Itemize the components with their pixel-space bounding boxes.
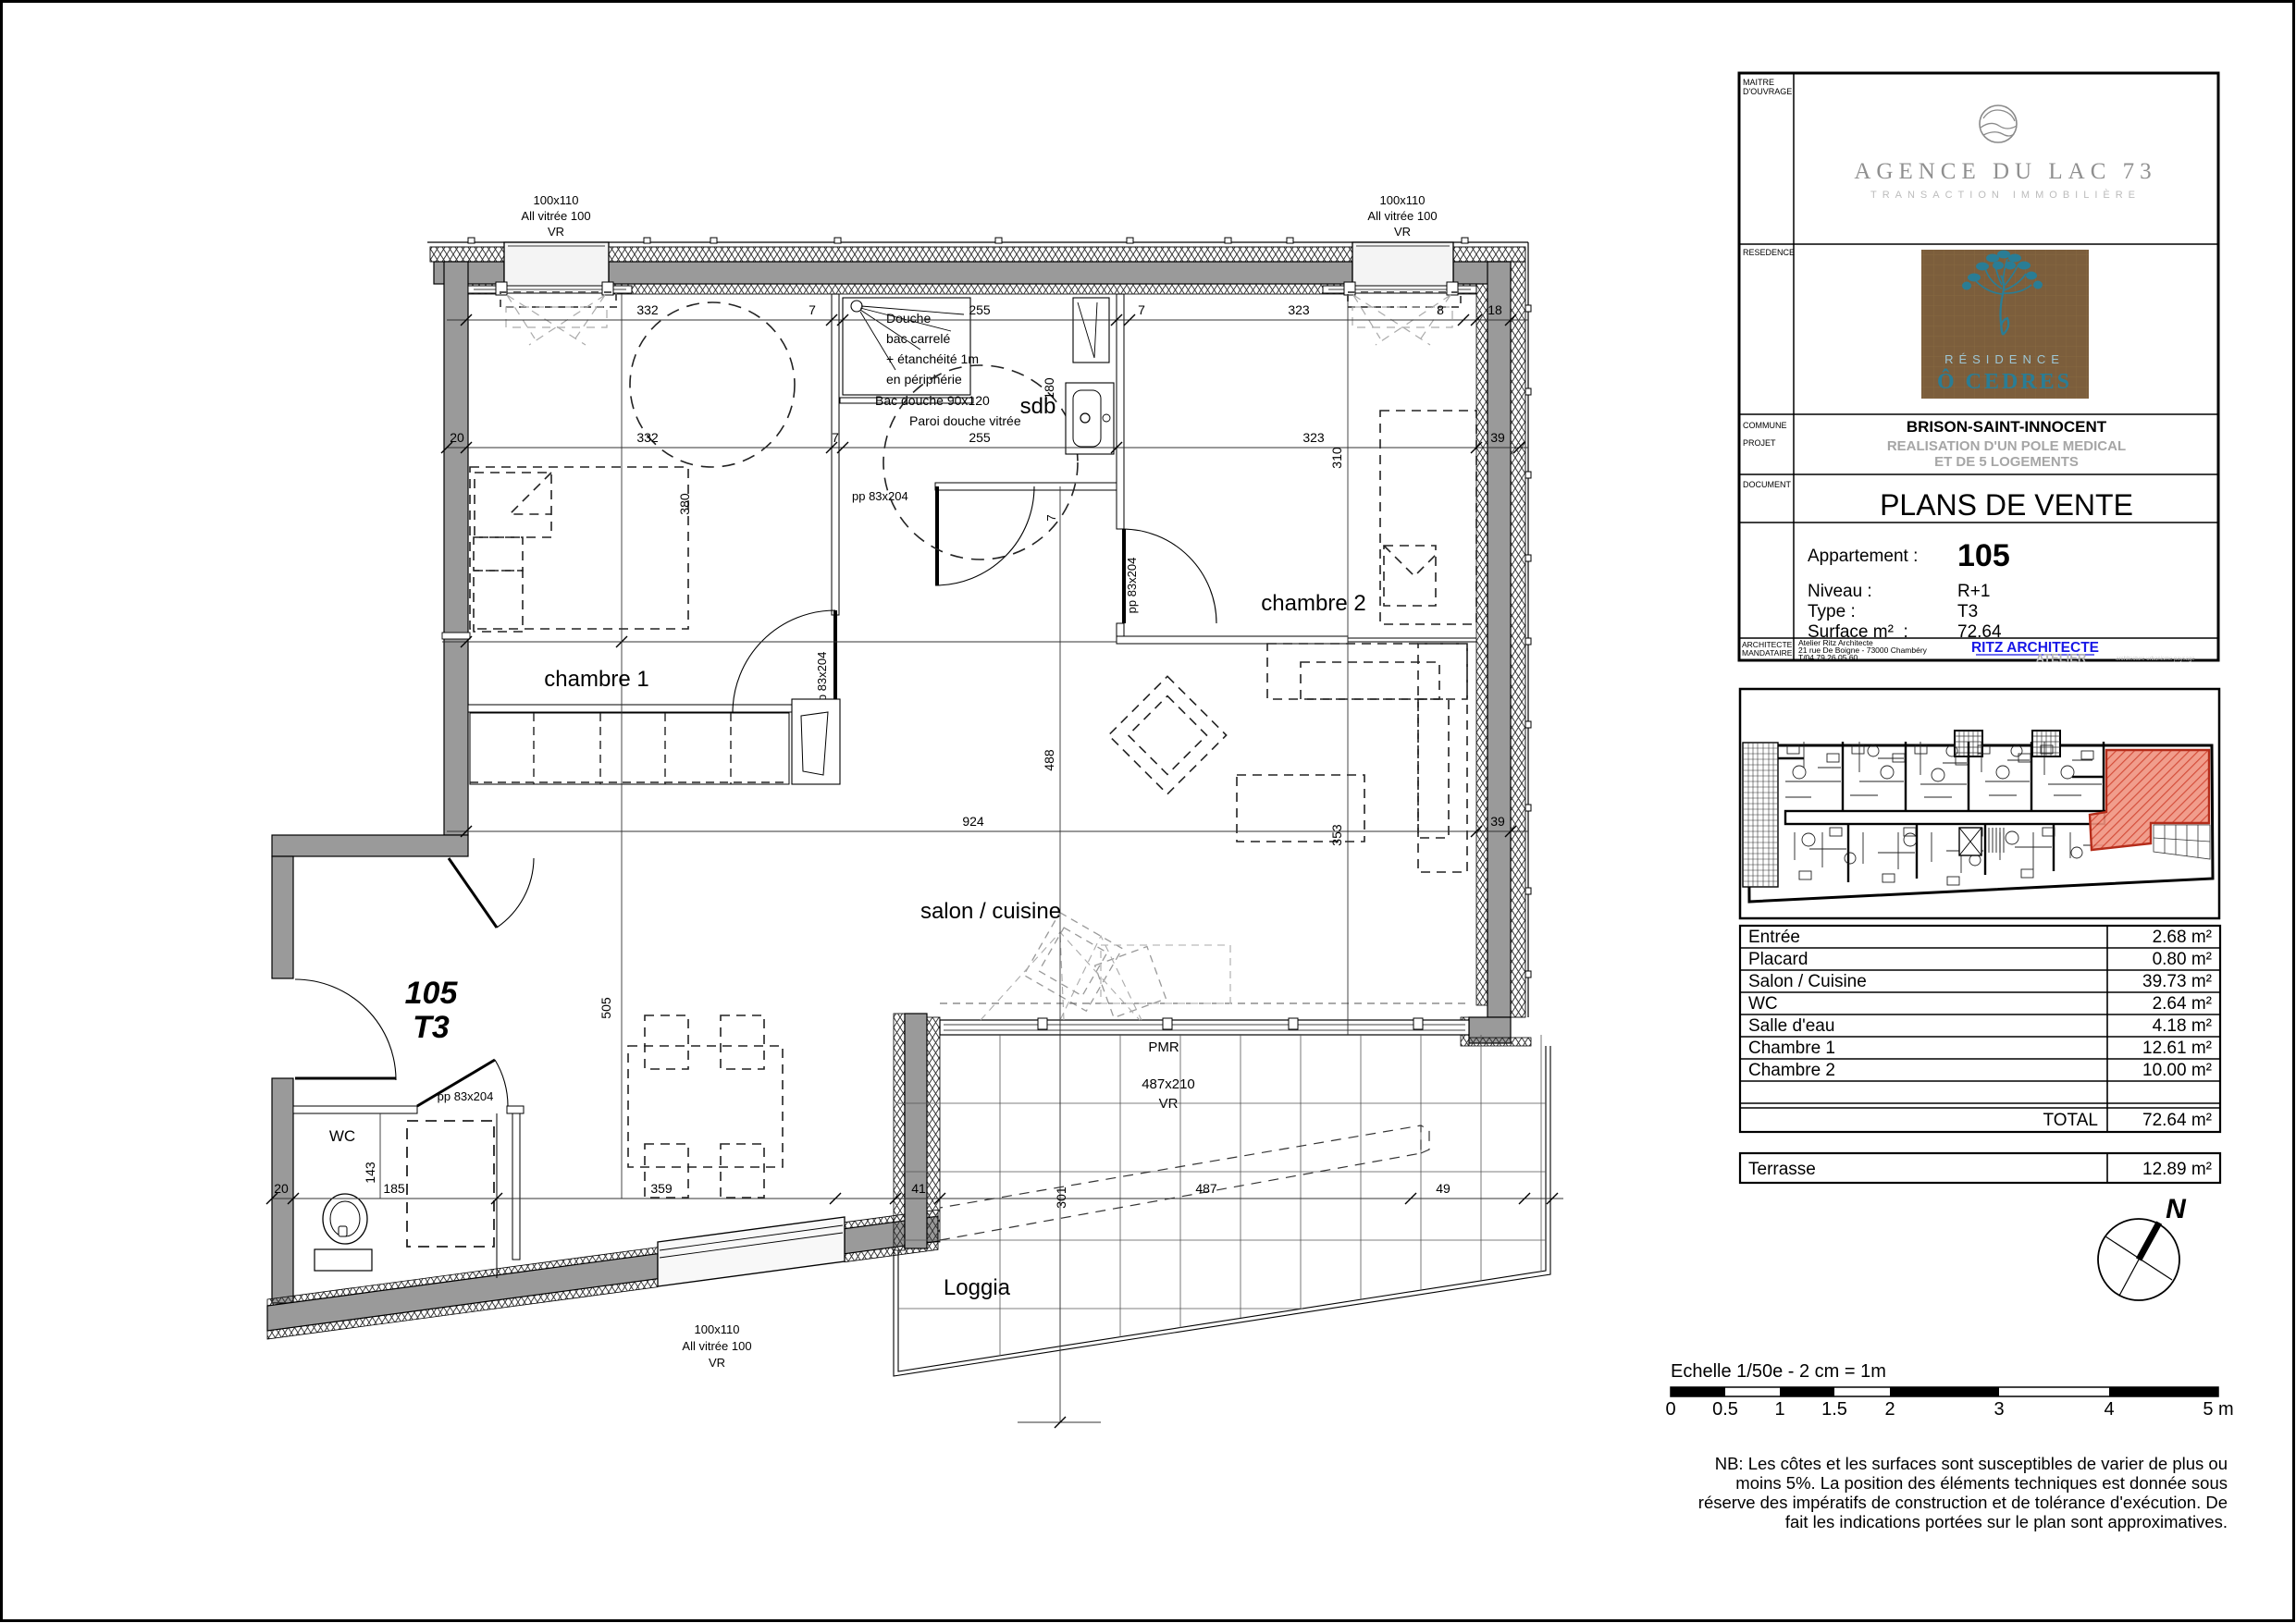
svg-text:10.00 m²: 10.00 m²	[2142, 1061, 2212, 1080]
svg-text:12.89 m²: 12.89 m²	[2142, 1160, 2212, 1179]
svg-text:39.73 m²: 39.73 m²	[2142, 972, 2212, 991]
svg-text:+ étanchéité 1m: + étanchéité 1m	[886, 351, 979, 366]
svg-text:All vitrée 100: All vitrée 100	[682, 1339, 751, 1353]
svg-text:18: 18	[1487, 302, 1502, 317]
svg-text:Placard: Placard	[1748, 950, 1808, 969]
svg-text:20: 20	[274, 1181, 289, 1196]
svg-text:1.5: 1.5	[1821, 1399, 1847, 1420]
svg-text:R+1: R+1	[1957, 582, 1990, 601]
svg-text:487x210: 487x210	[1142, 1076, 1195, 1092]
svg-text:PROJET: PROJET	[1743, 438, 1776, 448]
svg-text:bac carrelé: bac carrelé	[886, 331, 950, 346]
svg-text:TRANSACTION IMMOBILIÈRE: TRANSACTION IMMOBILIÈRE	[1870, 189, 2141, 201]
svg-text:fait les indications portées s: fait les indications portées sur le plan…	[1785, 1512, 2228, 1531]
svg-text:Ô CEDRES: Ô CEDRES	[1937, 369, 2072, 394]
svg-text:180: 180	[1042, 377, 1056, 400]
svg-text:RESEDENCE: RESEDENCE	[1743, 248, 1795, 257]
svg-text:chambre 2: chambre 2	[1261, 591, 1365, 616]
svg-text:ET DE 5 LOGEMENTS: ET DE 5 LOGEMENTS	[1934, 454, 2079, 470]
svg-text:7: 7	[1044, 514, 1058, 521]
svg-text:488: 488	[1042, 749, 1056, 771]
svg-text:moins 5%. La position des élém: moins 5%. La position des éléments techn…	[1735, 1473, 2228, 1493]
svg-text:49: 49	[1436, 1181, 1450, 1196]
svg-text:2.68 m²: 2.68 m²	[2153, 928, 2212, 947]
svg-text:Bac douche 90x120: Bac douche 90x120	[875, 393, 990, 408]
svg-text:Appartement :: Appartement :	[1808, 547, 1918, 566]
svg-text:8: 8	[1437, 302, 1444, 317]
svg-text:VR: VR	[709, 1356, 725, 1370]
svg-text:7: 7	[832, 430, 839, 445]
svg-text:N: N	[2166, 1194, 2187, 1224]
svg-text:VR: VR	[548, 225, 564, 239]
svg-text:380: 380	[677, 493, 692, 515]
svg-text:T3: T3	[413, 1010, 450, 1045]
svg-text:All vitrée 100: All vitrée 100	[1367, 209, 1437, 223]
svg-text:COMMUNE: COMMUNE	[1743, 421, 1787, 430]
svg-text:Paroi douche vitrée: Paroi douche vitrée	[909, 413, 1021, 428]
svg-text:0: 0	[1665, 1399, 1675, 1420]
svg-text:TOTAL: TOTAL	[2043, 1111, 2098, 1130]
svg-text:4.18 m²: 4.18 m²	[2153, 1016, 2212, 1036]
svg-text:359: 359	[650, 1181, 673, 1196]
svg-text:pp 83x204: pp 83x204	[438, 1089, 494, 1103]
svg-text:Chambre 1: Chambre 1	[1748, 1039, 1835, 1058]
svg-text:Entrée: Entrée	[1748, 928, 1800, 947]
svg-text:2.64 m²: 2.64 m²	[2153, 994, 2212, 1014]
svg-text:301: 301	[1054, 1187, 1068, 1209]
svg-text:pp 83x204: pp 83x204	[1125, 558, 1139, 614]
svg-text:5 m: 5 m	[2203, 1399, 2233, 1420]
svg-text:VR: VR	[1394, 225, 1411, 239]
svg-text:T/04 79 26 05 60: T/04 79 26 05 60	[1798, 653, 1858, 662]
svg-text:Terrasse: Terrasse	[1748, 1160, 1816, 1179]
svg-text:Douche: Douche	[886, 311, 931, 326]
svg-text:REALISATION D'UN POLE MEDICAL: REALISATION D'UN POLE MEDICAL	[1887, 438, 2126, 454]
svg-text:39: 39	[1490, 430, 1505, 445]
svg-text:1: 1	[1774, 1399, 1784, 1420]
svg-text:WC: WC	[329, 1127, 355, 1145]
svg-text:332: 332	[636, 302, 659, 317]
svg-text:39: 39	[1490, 814, 1505, 829]
svg-text:en périphérie: en périphérie	[886, 372, 962, 387]
svg-text:WC: WC	[1748, 994, 1778, 1014]
svg-text:T3: T3	[1957, 602, 1978, 621]
svg-text:7: 7	[1138, 302, 1145, 317]
svg-text:architecture urbanisme paysage: architecture urbanisme paysage	[2116, 657, 2195, 662]
svg-text:Loggia: Loggia	[944, 1275, 1011, 1300]
svg-text:185: 185	[383, 1181, 405, 1196]
svg-text:924: 924	[962, 814, 984, 829]
svg-text:100x110: 100x110	[534, 193, 579, 207]
svg-text:salon / cuisine: salon / cuisine	[920, 899, 1061, 924]
svg-text:487: 487	[1195, 1181, 1217, 1196]
svg-text:Salon / Cuisine: Salon / Cuisine	[1748, 972, 1867, 991]
svg-text:12.61 m²: 12.61 m²	[2142, 1039, 2212, 1058]
svg-text:2: 2	[1884, 1399, 1895, 1420]
svg-text:100x110: 100x110	[1380, 193, 1426, 207]
svg-text:AGENCE DU LAC 73: AGENCE DU LAC 73	[1854, 159, 2156, 184]
svg-text:VR: VR	[1159, 1096, 1179, 1112]
svg-text:323: 323	[1302, 430, 1325, 445]
svg-text:20: 20	[450, 430, 464, 445]
svg-text:D'OUVRAGE: D'OUVRAGE	[1743, 87, 1792, 96]
svg-text:4: 4	[2104, 1399, 2114, 1420]
svg-text:72.64 m²: 72.64 m²	[2142, 1111, 2212, 1130]
svg-text:PMR: PMR	[1148, 1039, 1179, 1055]
svg-text:353: 353	[1329, 824, 1344, 846]
svg-text:Type :: Type :	[1808, 602, 1856, 621]
svg-text:MAITRE: MAITRE	[1743, 78, 1774, 87]
svg-text:310: 310	[1329, 447, 1344, 469]
svg-text:505: 505	[599, 997, 613, 1019]
svg-text:DOCUMENT: DOCUMENT	[1743, 480, 1791, 489]
svg-text:3: 3	[1994, 1399, 2004, 1420]
svg-text:All vitrée 100: All vitrée 100	[521, 209, 590, 223]
svg-text:105: 105	[1957, 538, 2010, 573]
svg-text:RÉSIDENCE: RÉSIDENCE	[1944, 352, 2065, 366]
svg-text:100x110: 100x110	[695, 1322, 740, 1336]
svg-text:PLANS DE VENTE: PLANS DE VENTE	[1880, 488, 2133, 522]
svg-text:Niveau :: Niveau :	[1808, 582, 1872, 601]
svg-text:323: 323	[1288, 302, 1310, 317]
svg-text:chambre 1: chambre 1	[544, 667, 648, 692]
svg-text:Chambre 2: Chambre 2	[1748, 1061, 1835, 1080]
svg-text:BRISON-SAINT-INNOCENT: BRISON-SAINT-INNOCENT	[1907, 418, 2107, 436]
svg-text:41: 41	[911, 1181, 926, 1196]
svg-text:Salle d'eau: Salle d'eau	[1748, 1016, 1834, 1036]
svg-text:NB: Les côtes et les surfaces: NB: Les côtes et les surfaces sont susce…	[1715, 1454, 2228, 1473]
svg-text:105: 105	[405, 976, 459, 1011]
svg-text:7: 7	[809, 302, 816, 317]
svg-text:255: 255	[969, 430, 991, 445]
svg-text:255: 255	[969, 302, 991, 317]
svg-text:pp 83x204: pp 83x204	[852, 489, 908, 503]
svg-text:0.5: 0.5	[1712, 1399, 1738, 1420]
svg-text:réserve des impératifs de cons: réserve des impératifs de construction e…	[1698, 1493, 2228, 1512]
svg-text:332: 332	[636, 430, 659, 445]
svg-text:72.64: 72.64	[1957, 622, 2002, 642]
svg-text:0.80 m²: 0.80 m²	[2153, 950, 2212, 969]
svg-text:ATELIER: ATELIER	[2036, 651, 2087, 665]
svg-text:143: 143	[363, 1162, 377, 1184]
svg-text:MANDATAIRE: MANDATAIRE	[1742, 648, 1793, 658]
svg-text:Echelle 1/50e - 2 cm = 1m: Echelle 1/50e - 2 cm = 1m	[1671, 1361, 1886, 1382]
